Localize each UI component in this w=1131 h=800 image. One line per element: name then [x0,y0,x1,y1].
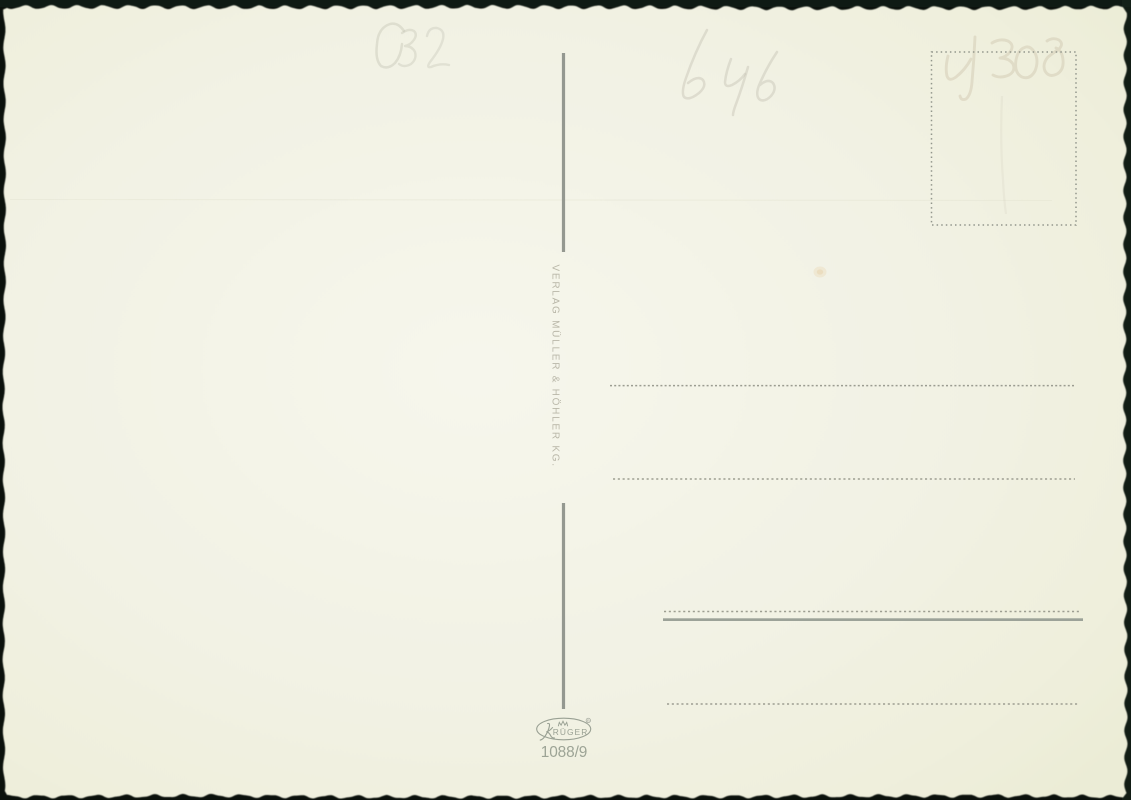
svg-text:RÜGER: RÜGER [553,727,589,737]
svg-text:VERLAG MÜLLER & HÖHLER KG.: VERLAG MÜLLER & HÖHLER KG. [550,265,562,468]
svg-text:1088/9: 1088/9 [541,744,587,761]
svg-text:R: R [587,718,590,723]
